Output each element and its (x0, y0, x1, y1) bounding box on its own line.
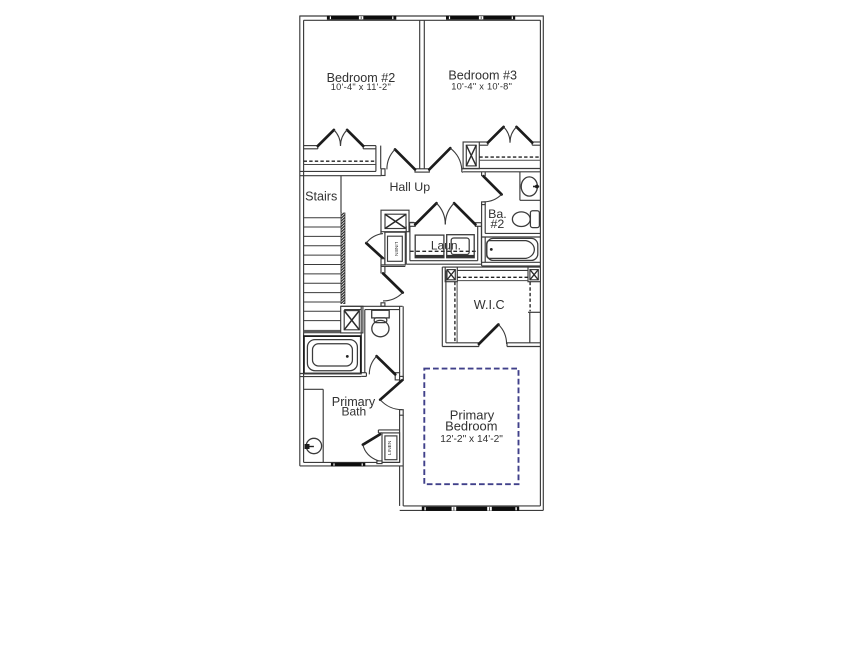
svg-text:Hall Up: Hall Up (389, 180, 430, 194)
svg-text:Stairs: Stairs (305, 189, 337, 203)
svg-text:Bath: Bath (341, 405, 366, 419)
svg-text:LINEN: LINEN (393, 242, 399, 257)
svg-text:Laun.: Laun. (431, 238, 461, 252)
svg-text:10'-4" x 11'-2": 10'-4" x 11'-2" (331, 82, 391, 92)
svg-text:10'-4" x 10'-8": 10'-4" x 10'-8" (451, 81, 512, 91)
svg-text:LINEN: LINEN (387, 440, 393, 455)
svg-text:Bedroom: Bedroom (445, 419, 497, 434)
svg-text:W.I.C: W.I.C (474, 298, 505, 312)
svg-text:#2: #2 (491, 217, 505, 231)
svg-text:12'-2" x 14'-2": 12'-2" x 14'-2" (440, 434, 503, 445)
